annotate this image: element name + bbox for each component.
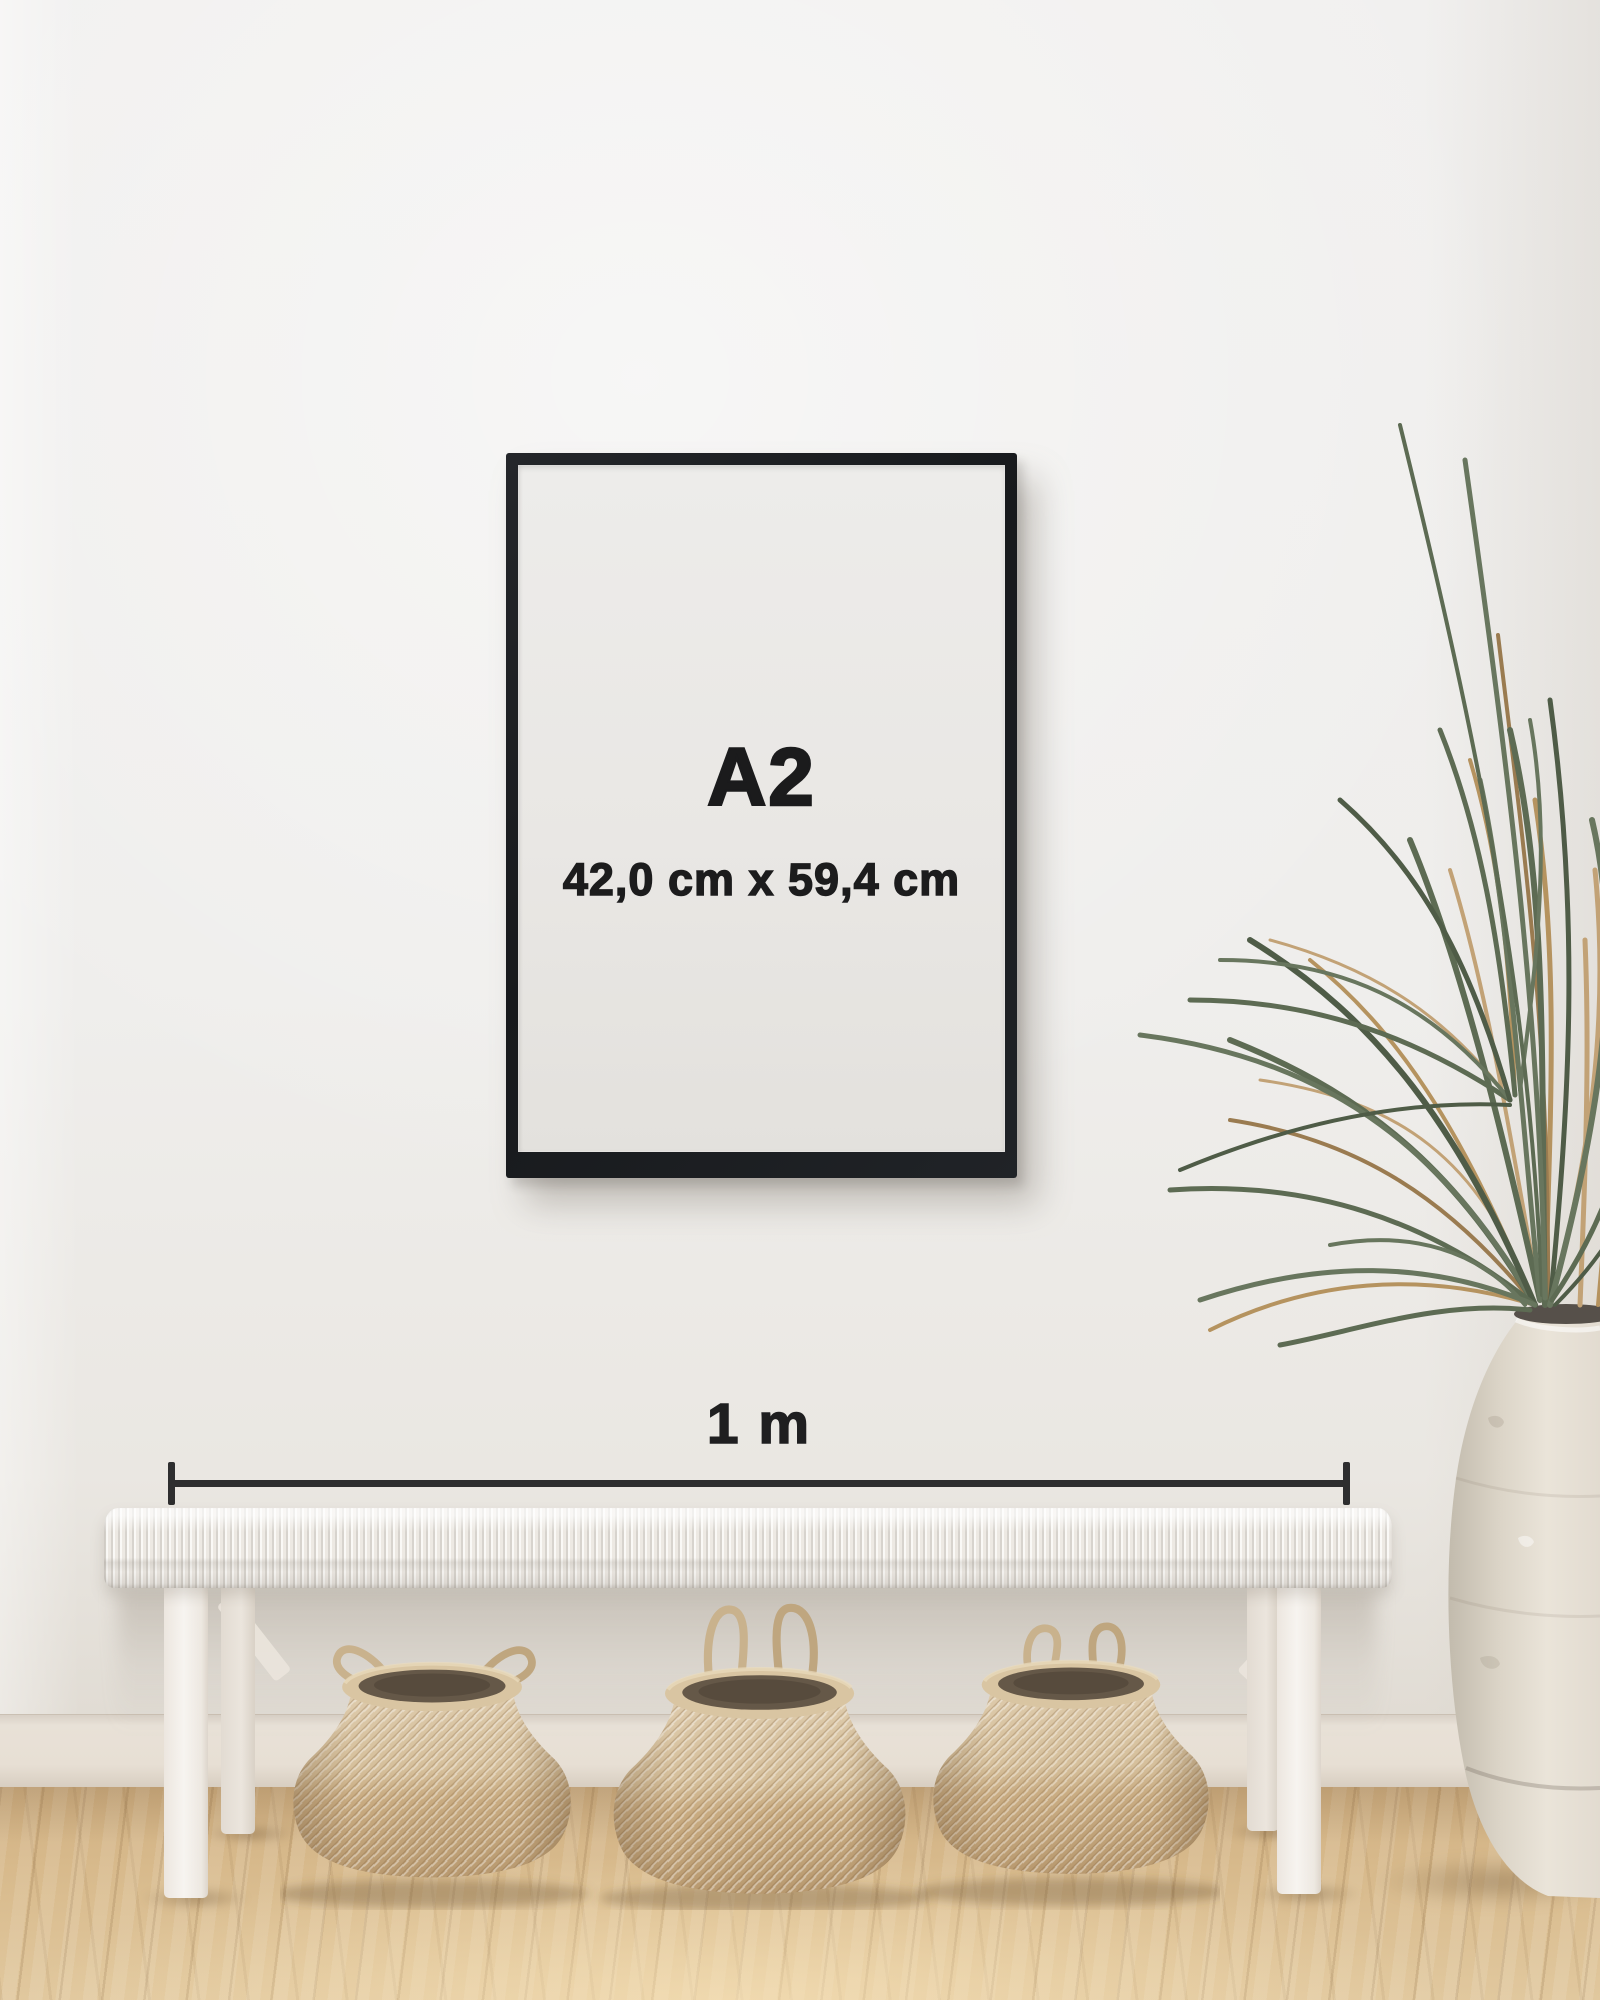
scale-bar: 1 m <box>170 1396 1348 1508</box>
ceramic-vase <box>1428 1298 1600 1910</box>
bench-leg-back-left <box>221 1586 255 1834</box>
poster-size-label: A2 <box>518 737 1005 819</box>
basket-3 <box>933 1626 1208 1874</box>
bench-leg-front-right <box>1277 1586 1321 1894</box>
scale-line <box>170 1480 1348 1487</box>
bench-top <box>104 1508 1392 1588</box>
poster-paper: A2 42,0 cm x 59,4 cm <box>518 465 1005 1152</box>
bench-leg-front-left <box>164 1586 208 1898</box>
poster-dimensions-label: 42,0 cm x 59,4 cm <box>518 857 1005 902</box>
basket-2 <box>614 1608 906 1894</box>
poster-frame: A2 42,0 cm x 59,4 cm <box>506 453 1017 1178</box>
scale-label: 1 m <box>170 1396 1348 1453</box>
palm-plant <box>1080 400 1600 1350</box>
seagrass-baskets <box>280 1580 1220 1910</box>
room-scene: A2 42,0 cm x 59,4 cm 1 m <box>0 0 1600 2000</box>
bench-leg-back-right <box>1247 1586 1279 1831</box>
basket-1 <box>293 1649 570 1877</box>
